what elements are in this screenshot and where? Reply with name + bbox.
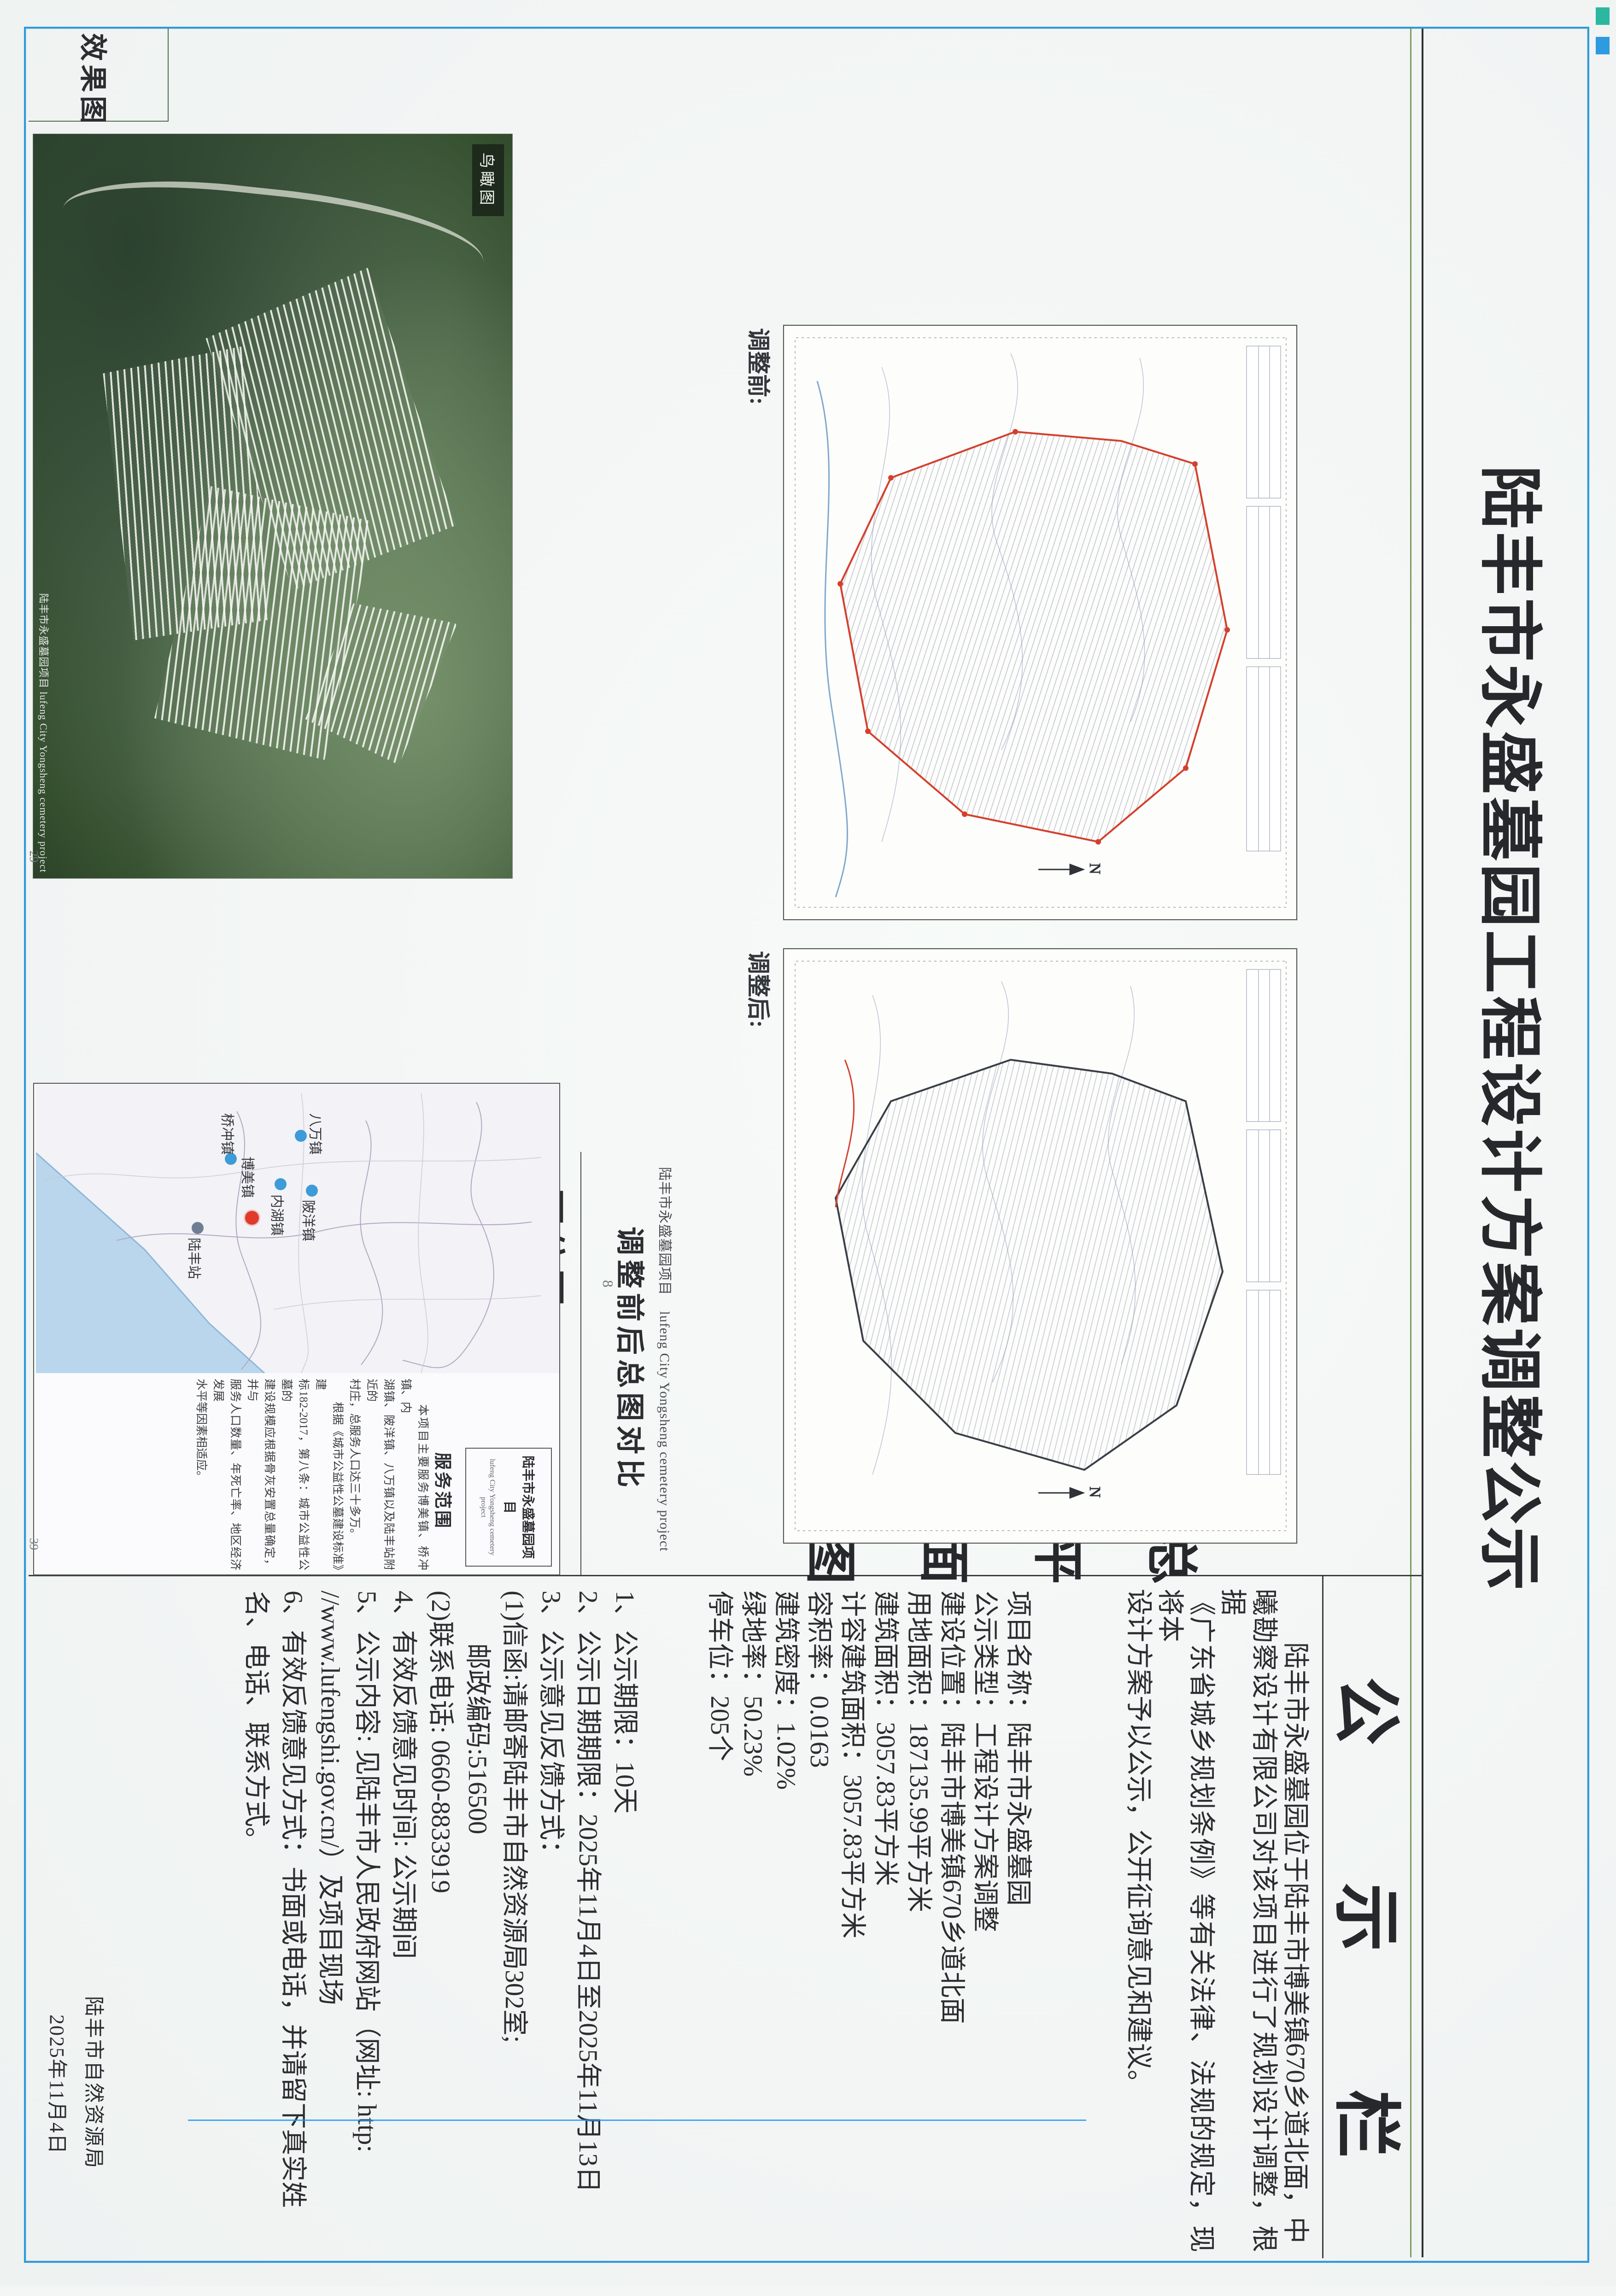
service-area-title: 服务范围 [432,1452,457,1530]
printer-mark-teal [1596,7,1610,25]
notice-board-header-cell: 公示栏 [1322,1576,1422,2258]
site-plan-before-drawing: N [784,326,1296,919]
svg-text:N: N [1086,1486,1103,1498]
site-plan-after-sheet: N [783,948,1297,1544]
comparison-caption-en: lufeng City Yongsheng cemetery project [657,1311,672,1551]
map-page-number: 39 [27,1538,41,1550]
svg-text:N: N [1086,863,1103,875]
comparison-caption-cn: 陆丰市永盛墓园项目 [657,1167,672,1295]
aerial-page-number: 29 [27,851,41,863]
figures-row-divider [580,1152,581,1575]
town-label-peiyang: 陂洋镇 [299,1200,320,1241]
town-dot-neihu [275,1178,287,1190]
plan-before-label: 调整前: [744,328,777,405]
effect-label-cell-line-h [168,29,169,122]
aerial-render-sheet: 鸟瞰图 陆丰市永盛墓园项目 lufeng City Yongsheng ceme… [33,134,513,879]
map-title-block: 陆丰市永盛墓园项目 lufeng City Yongsheng cemetery… [465,1448,552,1567]
town-label-qiaochong: 桥冲镇 [218,1113,239,1155]
comparison-caption: 陆丰市永盛墓园项目 lufeng City Yongsheng cemetery… [612,1161,676,1557]
north-compass-icon: N [1038,1486,1103,1498]
site-plan-after-drawing: N [784,949,1296,1543]
site-dot-bomei [245,1211,259,1225]
plans-page-number: 8 [599,1280,616,1287]
legend-table-strip [1247,346,1281,851]
location-map-sheet: 八万镇 陂洋镇 内湖镇 博美镇 桥冲镇 陆丰站 陆丰市永盛墓园项目 lufeng… [33,1083,560,1575]
issuer-signature: 陆丰市自然资源局 [81,1996,111,2169]
printer-mark-blue [1596,37,1610,54]
map-title-cn: 陆丰市永盛墓园项目 [501,1451,538,1563]
birdseye-tag: 鸟瞰图 [472,144,504,216]
panel-inner-rule [188,2120,1086,2121]
location-map [36,1084,559,1373]
notice-board-header: 公示栏 [1323,1677,1423,2296]
station-dot-lufeng [192,1222,204,1234]
page-title: 陆丰市永盛墓园工程设计方案调整公示 [1470,465,1562,1479]
plan-after-label: 调整后: [744,951,777,1028]
town-label-neihu: 内湖镇 [268,1194,288,1236]
road-line [817,381,847,897]
notice-intro-paragraph: 陆丰市永盛墓园位于陆丰市博美镇670乡道北面，中 曦勘察设计有限公司对该项目进行… [1123,1589,1311,2252]
north-compass-icon: N [1038,863,1103,875]
town-dot-bawan [295,1130,307,1142]
town-dot-peiyang [306,1185,318,1197]
site-plan-before-sheet: N [783,325,1297,920]
map-title-en: lufeng City Yongsheng cemetery project [479,1451,497,1563]
legend-table-strip [1247,969,1281,1474]
town-label-bomei: 博美镇 [239,1157,259,1198]
aerial-caption: 陆丰市永盛墓园项目 lufeng City Yongsheng cemetery… [37,593,52,873]
grave-rows-before [840,432,1227,842]
notice-items-list: 1、公示期限：10天 2、公示日期期限：2025年11月4日至2025年11月1… [238,1591,643,2263]
town-label-bawan: 八万镇 [306,1113,327,1155]
grave-rows-after [836,1060,1223,1470]
scanned-notice-sheet: 陆丰市永盛墓园工程设计方案调整公示 公示栏 陆丰市永盛墓园位于陆丰市博美镇670… [0,0,1616,2286]
service-area-text: 本项目主要服务博美镇、桥冲镇、内 湖镇、陂洋镇、八万镇以及陆丰站附近的 村庄，总… [193,1379,431,1570]
project-info-list: 项目名称：陆丰市永盛墓园 公示类型：工程设计方案调整 建设位置：陆丰市博美镇67… [703,1591,1035,2245]
comparison-caption-main: 调整前后总图对比 [612,1161,653,1557]
station-label-lufeng: 陆丰站 [185,1238,205,1279]
effect-render-label: 效果图 [75,33,115,127]
issue-date: 2025年11月4日 [44,2014,74,2155]
